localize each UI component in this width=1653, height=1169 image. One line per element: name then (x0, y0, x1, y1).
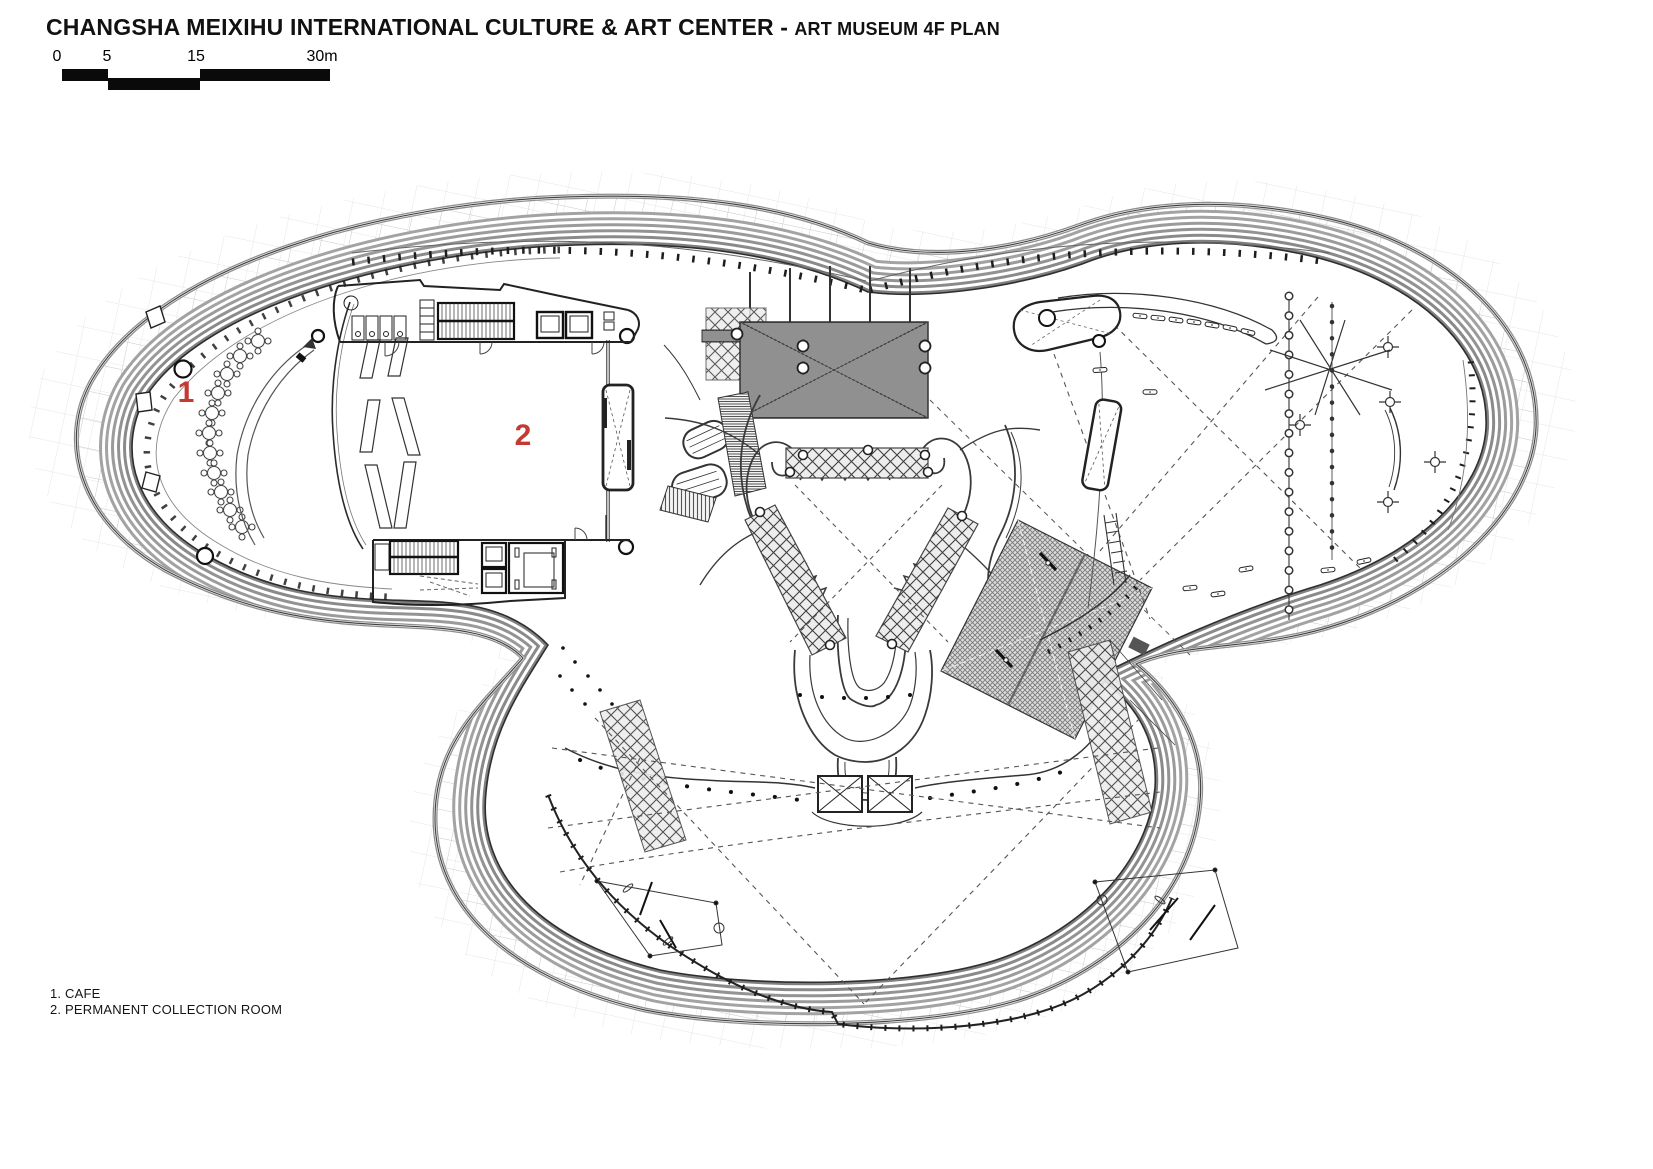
legend-item-cafe: 1. CAFE (50, 986, 282, 1002)
stair-block-top (438, 303, 514, 339)
elevators-bottom (482, 543, 563, 593)
movable-wall-panel (603, 385, 633, 490)
legend-item-permanent-collection: 2. PERMANENT COLLECTION ROOM (50, 1002, 282, 1018)
marker-cafe: 1 (178, 376, 195, 409)
stair-block-bottom (390, 541, 458, 574)
marker-permanent-collection: 2 (515, 419, 532, 452)
control-room (1014, 296, 1121, 351)
legend: 1. CAFE 2. PERMANENT COLLECTION ROOM (50, 986, 282, 1018)
